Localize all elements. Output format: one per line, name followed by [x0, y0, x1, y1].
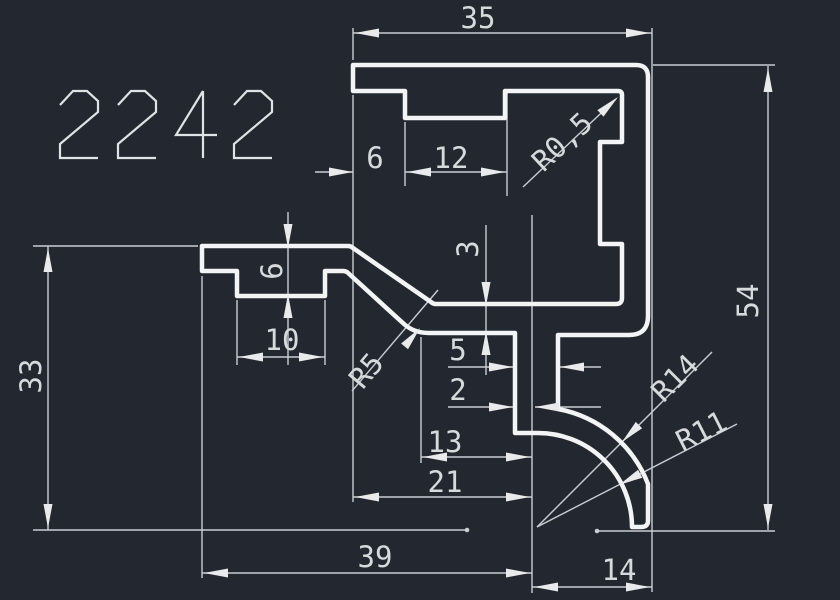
dim-6-top-label: 6 [366, 141, 383, 175]
dim-10-label: 10 [265, 323, 300, 357]
dim-39-label: 39 [358, 540, 393, 574]
cad-canvas: 35 6 12 R0,5 6 10 33 3 5 2 13 21 39 14 5… [0, 0, 840, 600]
dim-2-label: 2 [449, 373, 466, 407]
dim-21-label: 21 [428, 465, 463, 499]
drawing-background [0, 0, 840, 600]
cad-drawing: 35 6 12 R0,5 6 10 33 3 5 2 13 21 39 14 5… [0, 0, 840, 600]
dim-12-label: 12 [434, 141, 469, 175]
dim-33-label: 33 [14, 359, 48, 394]
dim-6-left-label: 6 [255, 262, 289, 279]
dim-3-label: 3 [451, 240, 485, 257]
dim-35-label: 35 [461, 1, 496, 35]
dim-14-label: 14 [602, 553, 637, 587]
dim-13-label: 13 [428, 425, 463, 459]
point-marker [595, 529, 598, 532]
point-marker [465, 528, 468, 531]
dim-54-label: 54 [731, 284, 765, 319]
dim-5-label: 5 [449, 333, 466, 367]
